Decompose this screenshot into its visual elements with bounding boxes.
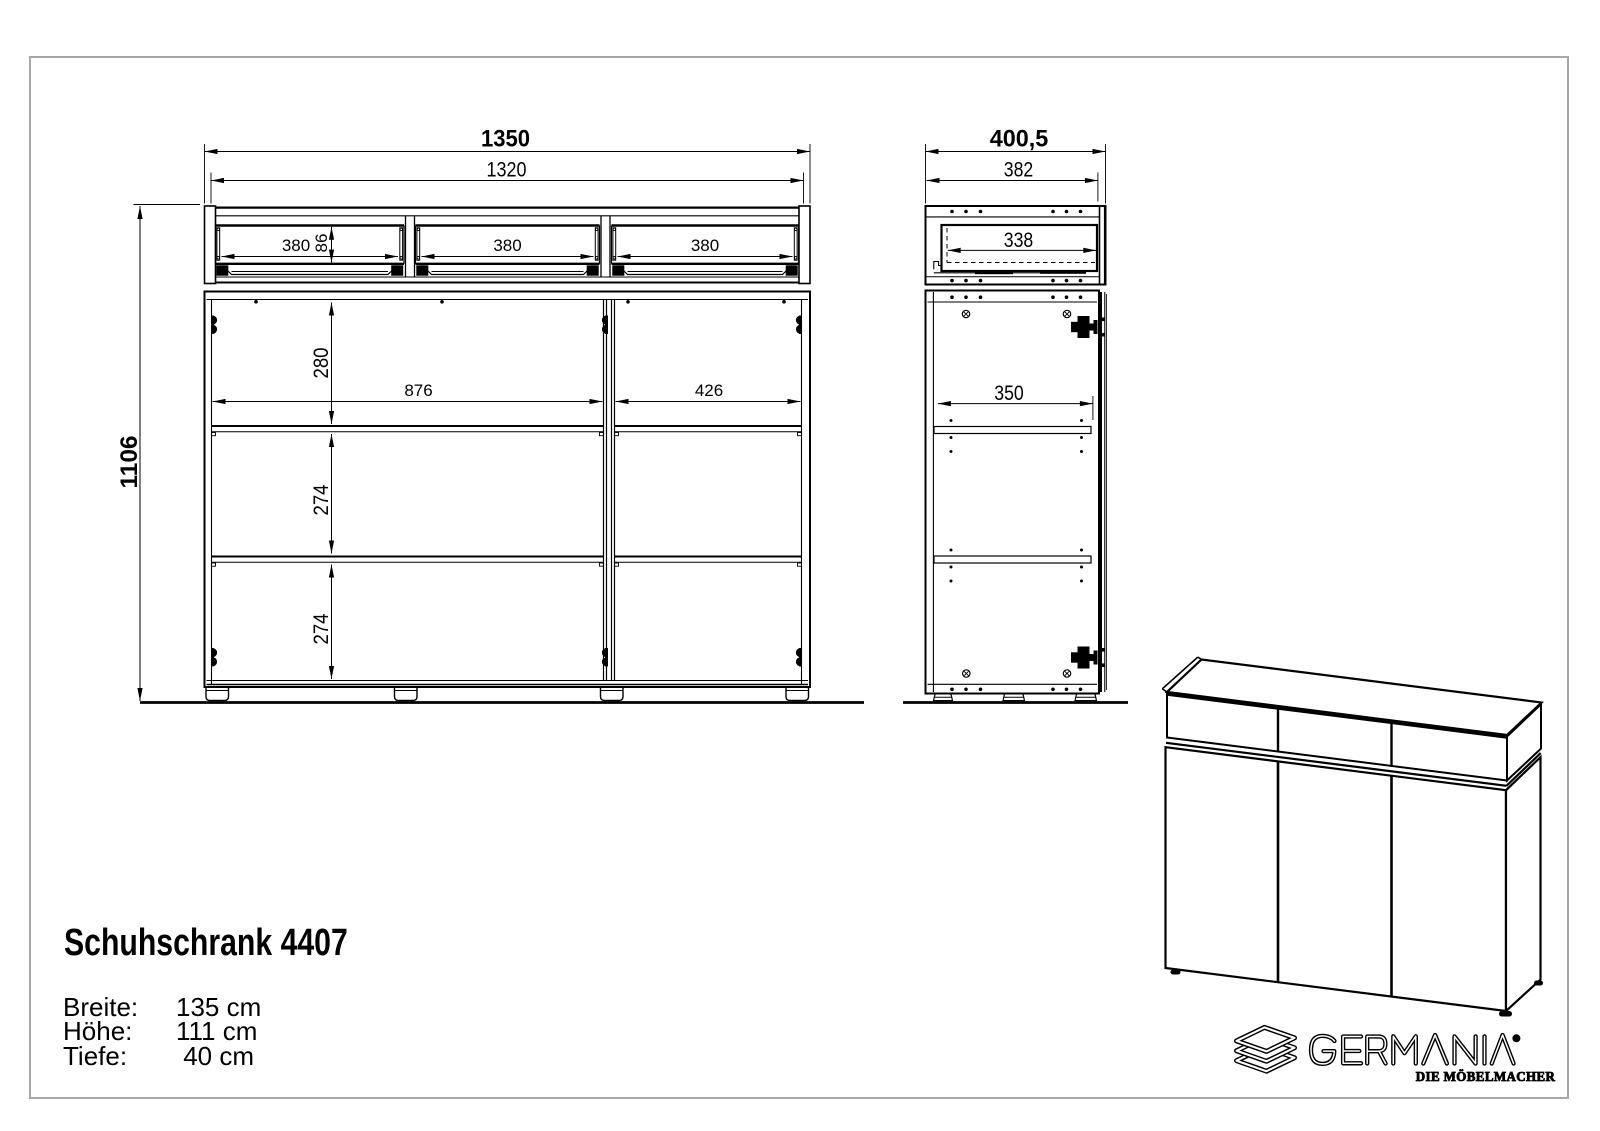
svg-text:876: 876: [404, 381, 432, 400]
svg-text:380: 380: [282, 236, 310, 255]
svg-text:382: 382: [1004, 159, 1034, 182]
svg-text:280: 280: [310, 348, 333, 379]
svg-text:DIE MÖBELMACHER: DIE MÖBELMACHER: [1416, 1069, 1556, 1084]
svg-text:426: 426: [695, 381, 723, 400]
svg-text:380: 380: [691, 236, 719, 255]
svg-text:1350: 1350: [481, 126, 530, 153]
svg-text:1320: 1320: [487, 159, 527, 182]
svg-text:380: 380: [493, 236, 521, 255]
svg-text:86: 86: [312, 234, 331, 253]
svg-text:350: 350: [994, 382, 1024, 405]
svg-text:338: 338: [1004, 229, 1034, 252]
svg-text:274: 274: [310, 613, 333, 644]
svg-text:274: 274: [310, 484, 333, 515]
svg-text:1106: 1106: [116, 436, 143, 489]
svg-text:400,5: 400,5: [990, 126, 1049, 153]
